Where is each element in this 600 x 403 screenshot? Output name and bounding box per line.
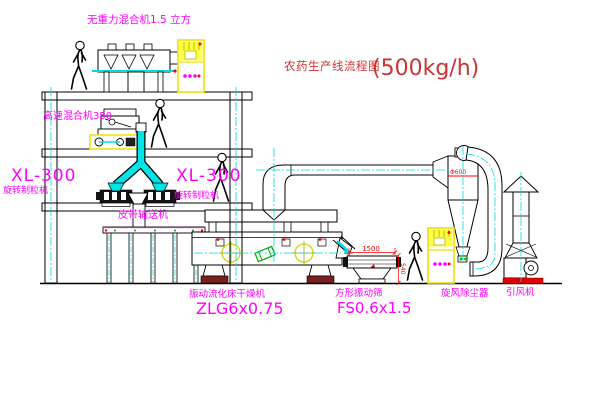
cabinet-window bbox=[434, 238, 445, 245]
fan-housing bbox=[504, 258, 526, 278]
title-text: 农药生产线流程图 bbox=[284, 59, 380, 73]
label-cyclone: 旋风除尘器 bbox=[441, 287, 489, 299]
conveyor-legs bbox=[107, 233, 198, 283]
person-figure bbox=[408, 232, 423, 280]
label-high-speed-mixer: 高速混合机350 bbox=[43, 109, 112, 122]
dim-600-text: Φ600 bbox=[450, 169, 466, 176]
label-gravity-mixer: 无重力混合机1.5 立方 bbox=[87, 13, 191, 26]
gravity-free-mixer bbox=[92, 44, 179, 92]
mixer-discharge bbox=[136, 123, 146, 132]
label-xl300-right: XL-300 bbox=[176, 166, 241, 186]
induced-draft-fan-unit bbox=[503, 176, 543, 284]
label-xl300-left: XL-300 bbox=[11, 166, 76, 186]
dim-1500-text: 1500 bbox=[362, 245, 380, 253]
cad-process-flow-diagram: 农药生产线流程图 (500kg/h) 无重力混合机1.5 立方 高速混合机350… bbox=[0, 0, 600, 403]
floor-slab-1 bbox=[42, 92, 252, 100]
label-granulator-right: 旋转制粒机 bbox=[174, 189, 219, 201]
exhaust-duct bbox=[263, 165, 436, 210]
label-belt-conveyor: 皮带输送机 bbox=[118, 208, 168, 221]
cyclone-inlet bbox=[433, 156, 448, 188]
label-dryer-model: ZLG6x0.75 bbox=[196, 299, 284, 318]
label-fan: 引风机 bbox=[506, 286, 535, 298]
control-cabinet-ground bbox=[428, 228, 454, 283]
dryer-foot-right bbox=[307, 276, 334, 283]
label-screen-model: FS0.6x1.5 bbox=[337, 299, 411, 317]
mixer-outlet bbox=[128, 72, 144, 92]
label-granulator-left: 旋转制粒机 bbox=[3, 184, 48, 196]
dim-540-text: 540 bbox=[399, 263, 406, 275]
person-figure bbox=[72, 41, 87, 89]
dryer-foot-left bbox=[201, 276, 228, 283]
control-cabinet-top bbox=[178, 40, 204, 92]
fluid-bed-dryer bbox=[192, 222, 352, 283]
person-figure bbox=[152, 99, 167, 147]
cabinet-window bbox=[185, 51, 196, 59]
title-capacity: (500kg/h) bbox=[372, 56, 479, 81]
label-screen-name: 方形振动筛 bbox=[335, 287, 383, 299]
fan-base bbox=[503, 278, 543, 284]
